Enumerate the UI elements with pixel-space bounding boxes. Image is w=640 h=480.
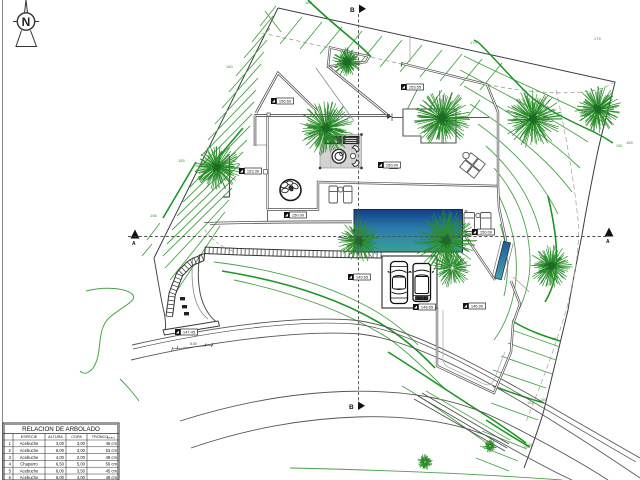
- svg-text:150.00: 150.00: [292, 213, 305, 218]
- svg-text:53 cm: 53 cm: [106, 448, 118, 453]
- svg-text:COPA: COPA: [71, 435, 82, 439]
- svg-text:56 cm: 56 cm: [106, 462, 118, 467]
- svg-text:Acebuche: Acebuche: [20, 441, 39, 446]
- svg-text:4,00: 4,00: [56, 455, 65, 460]
- svg-text:B: B: [350, 7, 355, 14]
- svg-text:156: 156: [150, 213, 157, 218]
- svg-text:ESPECIE: ESPECIE: [21, 435, 38, 439]
- svg-text:B: B: [349, 404, 354, 411]
- svg-text:6,00: 6,00: [56, 448, 65, 453]
- svg-text:46 cm: 46 cm: [106, 441, 118, 446]
- svg-text:ALTURA: ALTURA: [48, 435, 63, 439]
- svg-text:148.65: 148.65: [421, 305, 434, 310]
- svg-text:150.00: 150.00: [386, 163, 399, 168]
- svg-text:156.60: 156.60: [279, 99, 292, 104]
- svg-text:RELACION DE ARBOLADO: RELACION DE ARBOLADO: [22, 426, 100, 433]
- svg-text:3,00: 3,00: [56, 441, 65, 446]
- svg-text:A: A: [132, 241, 136, 247]
- svg-text:150.00: 150.00: [480, 230, 493, 235]
- svg-text:3,00: 3,00: [77, 441, 86, 446]
- svg-text:Acebuche: Acebuche: [20, 468, 39, 473]
- svg-text:5.00: 5.00: [190, 342, 197, 346]
- svg-text:4,00: 4,00: [77, 475, 86, 480]
- svg-text:A: A: [606, 239, 610, 245]
- svg-text:48 cm: 48 cm: [106, 455, 118, 460]
- svg-text:153.55: 153.55: [409, 85, 422, 90]
- svg-text:6,00: 6,00: [56, 468, 65, 473]
- svg-text:45 cm: 45 cm: [106, 468, 118, 473]
- svg-text:175: 175: [594, 36, 601, 41]
- svg-text:147.45: 147.45: [183, 330, 196, 335]
- svg-text:170: 170: [470, 40, 477, 45]
- svg-text:2,00: 2,00: [77, 455, 86, 460]
- svg-text:151: 151: [527, 400, 534, 405]
- svg-text:165: 165: [626, 140, 633, 145]
- svg-text:3,00: 3,00: [77, 448, 86, 453]
- svg-text:Acebuche: Acebuche: [20, 475, 39, 480]
- svg-text:146.90: 146.90: [471, 304, 484, 309]
- svg-text:5,00: 5,00: [77, 462, 86, 467]
- svg-text:6,00: 6,00: [56, 475, 65, 480]
- svg-text:150: 150: [523, 444, 530, 449]
- svg-text:Chaparro: Chaparro: [20, 462, 38, 467]
- svg-text:160: 160: [226, 64, 233, 69]
- svg-text:Acebuche: Acebuche: [20, 448, 39, 453]
- svg-text:(perim.): (perim.): [107, 437, 115, 440]
- svg-text:3,50: 3,50: [77, 468, 86, 473]
- svg-text:6,50: 6,50: [56, 462, 65, 467]
- svg-text:155: 155: [178, 158, 185, 163]
- svg-text:TRONCO: TRONCO: [92, 435, 108, 439]
- svg-text:165: 165: [305, 0, 312, 5]
- svg-text:151: 151: [552, 337, 558, 341]
- svg-text:Acebuche: Acebuche: [20, 455, 39, 460]
- svg-text:N: N: [22, 15, 31, 29]
- svg-text:165: 165: [616, 144, 622, 148]
- svg-text:149.65: 149.65: [356, 275, 369, 280]
- svg-text:48 cm: 48 cm: [106, 475, 118, 480]
- svg-text:153.30: 153.30: [247, 169, 260, 174]
